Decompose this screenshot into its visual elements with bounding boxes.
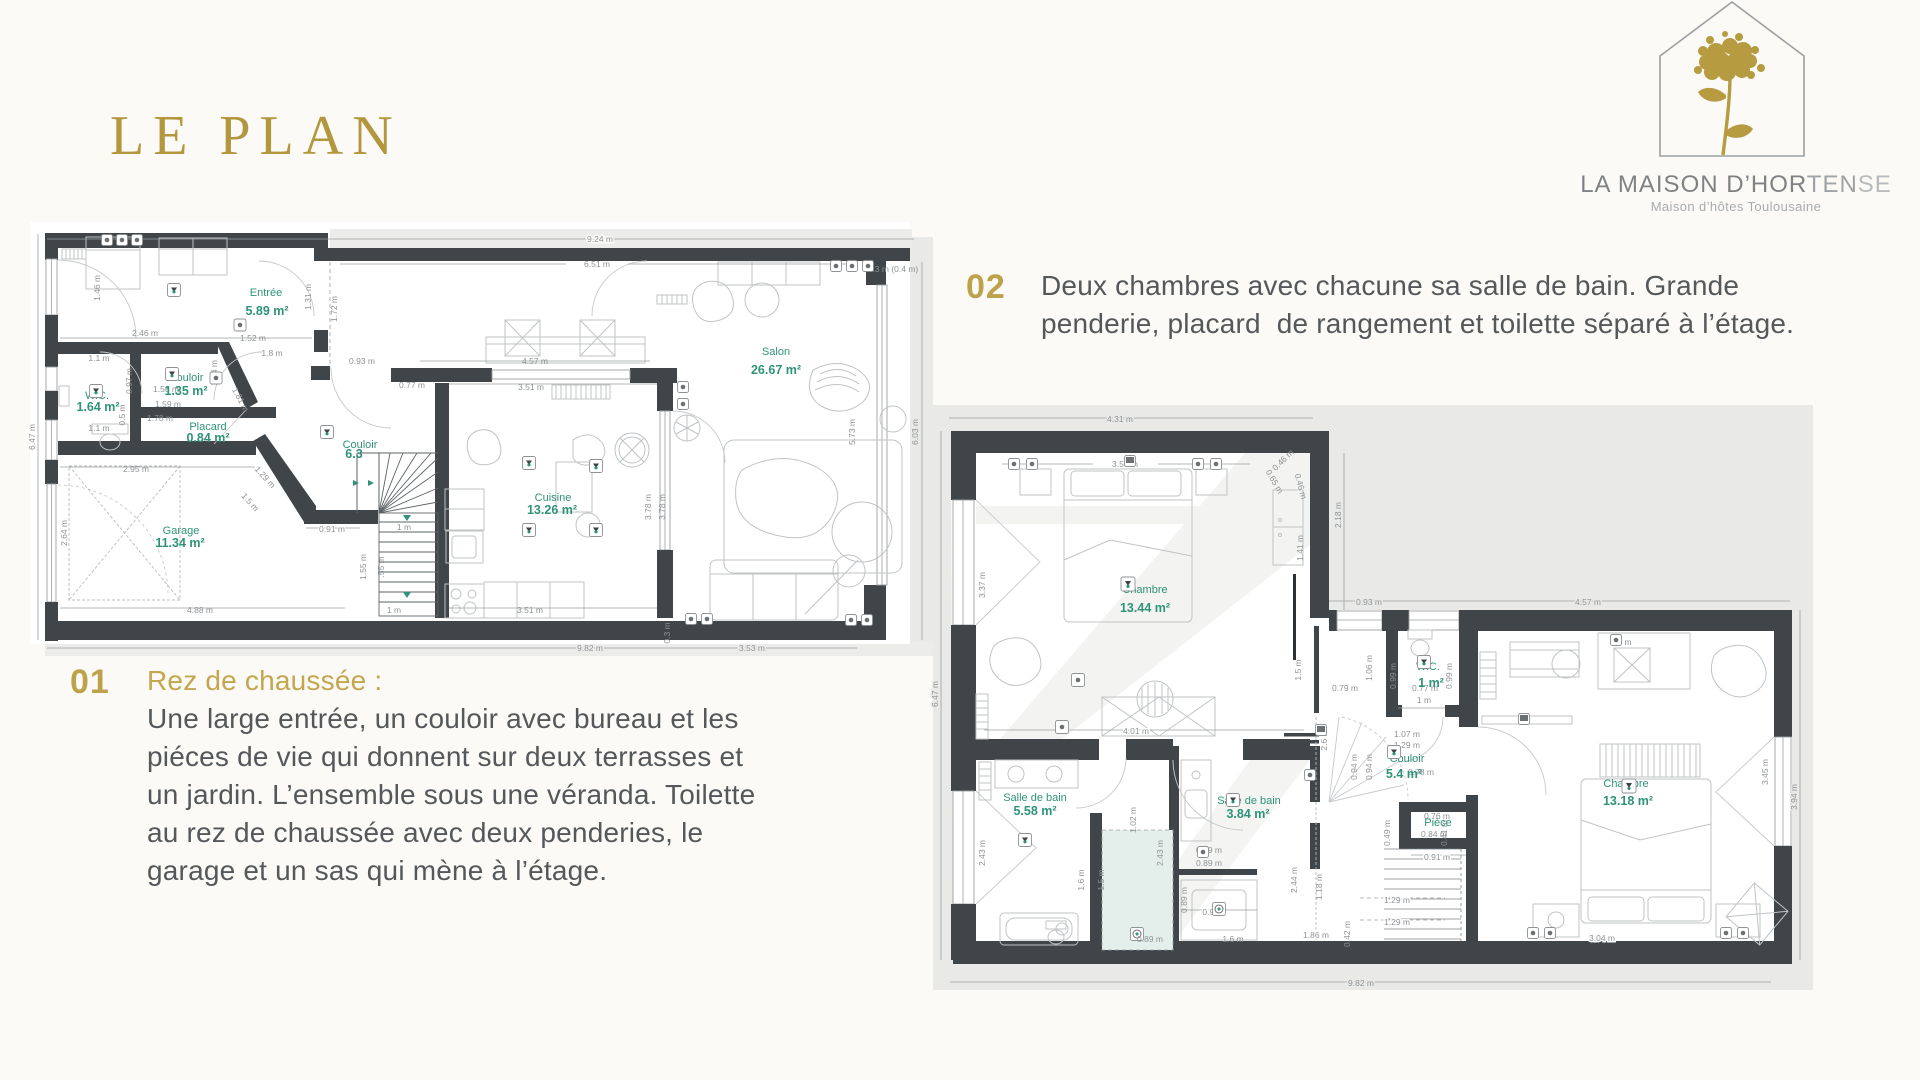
svg-text:1 m: 1 m [387, 605, 401, 615]
svg-text:3.84 m²: 3.84 m² [1226, 807, 1269, 821]
svg-text:13.44 m²: 13.44 m² [1120, 601, 1170, 615]
svg-text:1.59 m: 1.59 m [155, 399, 181, 409]
svg-text:4.31 m: 4.31 m [1107, 414, 1133, 424]
svg-text:3.45 m: 3.45 m [1760, 759, 1770, 785]
svg-text:0.94 m: 0.94 m [1349, 754, 1359, 780]
svg-text:13.26 m²: 13.26 m² [527, 503, 577, 517]
svg-text:1.5 m: 1.5 m [1096, 869, 1106, 890]
svg-text:3.51 m: 3.51 m [518, 382, 544, 392]
svg-text:0.97 m: 0.97 m [124, 368, 134, 394]
svg-text:1.31 m: 1.31 m [303, 284, 313, 310]
svg-text:2.18 m: 2.18 m [1333, 502, 1343, 528]
svg-text:0.3 m: 0.3 m [662, 622, 672, 643]
svg-text:0.42 m: 0.42 m [1342, 921, 1352, 947]
svg-text:1.06 m: 1.06 m [1364, 655, 1374, 681]
svg-text:11.34 m²: 11.34 m² [155, 536, 204, 550]
svg-text:6.47 m: 6.47 m [27, 424, 37, 450]
svg-text:1.72 m: 1.72 m [329, 296, 339, 322]
svg-text:0.93 m: 0.93 m [349, 356, 375, 366]
svg-text:3.53 m: 3.53 m [739, 643, 765, 653]
svg-text:1.29 m: 1.29 m [1384, 895, 1410, 905]
svg-text:9.24 m: 9.24 m [587, 234, 613, 244]
svg-text:0.99 m: 0.99 m [1444, 663, 1454, 689]
svg-text:1.35 m²: 1.35 m² [164, 384, 207, 398]
svg-text:6.51 m: 6.51 m [584, 259, 610, 269]
svg-text:Salle de bain: Salle de bain [1003, 792, 1067, 804]
svg-text:4.57 m: 4.57 m [1575, 597, 1601, 607]
svg-text:Pièce: Pièce [1424, 817, 1452, 829]
svg-text:1 m: 1 m [1417, 695, 1431, 705]
svg-text:0.99 m: 0.99 m [1388, 663, 1398, 689]
svg-text:0.3 m (0.4 m): 0.3 m (0.4 m) [868, 264, 919, 274]
svg-text:3.04 m: 3.04 m [1589, 933, 1615, 943]
svg-text:0.77 m: 0.77 m [399, 380, 425, 390]
svg-text:4.88 m: 4.88 m [187, 605, 213, 615]
svg-text:.55 m: .55 m [376, 556, 386, 577]
svg-text:0.89 m: 0.89 m [1196, 858, 1222, 868]
svg-text:1.5 m: 1.5 m [1293, 659, 1303, 680]
svg-text:0.94 m: 0.94 m [1364, 754, 1374, 780]
svg-text:13.18 m²: 13.18 m² [1603, 794, 1653, 808]
svg-text:2.43 m: 2.43 m [977, 840, 987, 866]
svg-text:2.64 m: 2.64 m [59, 520, 69, 546]
svg-text:1.55 m: 1.55 m [358, 554, 368, 580]
svg-text:Salon: Salon [762, 346, 790, 358]
svg-text:0.89 m: 0.89 m [1179, 887, 1189, 913]
svg-text:6.3: 6.3 [345, 447, 362, 461]
svg-text:0.84 m²: 0.84 m² [186, 431, 229, 445]
svg-text:1 m: 1 m [397, 522, 411, 532]
svg-text:1.02 m: 1.02 m [1128, 807, 1138, 833]
svg-text:1.41 m: 1.41 m [1295, 535, 1305, 561]
svg-text:1.6 m: 1.6 m [1222, 934, 1243, 944]
svg-text:6.47 m: 6.47 m [930, 681, 940, 707]
svg-text:1.18 m: 1.18 m [1314, 874, 1324, 900]
svg-text:1.07 m: 1.07 m [1394, 729, 1420, 739]
svg-text:2.46 m: 2.46 m [132, 328, 158, 338]
svg-text:3.37 m: 3.37 m [977, 572, 987, 598]
svg-text:1.1 m: 1.1 m [88, 353, 109, 363]
svg-text:1.29 m: 1.29 m [1384, 917, 1410, 927]
svg-text:5.4 m²: 5.4 m² [1386, 767, 1422, 781]
svg-text:26.67 m²: 26.67 m² [751, 363, 801, 377]
svg-text:6.03 m: 6.03 m [910, 419, 920, 445]
svg-text:1.78 m: 1.78 m [147, 413, 173, 423]
svg-text:4.57 m: 4.57 m [522, 356, 548, 366]
svg-text:1.64 m²: 1.64 m² [76, 400, 119, 414]
svg-text:3.51 m: 3.51 m [517, 605, 543, 615]
svg-text:1 m²: 1 m² [1418, 676, 1444, 690]
svg-text:1.8 m: 1.8 m [261, 348, 282, 358]
svg-text:5.58 m²: 5.58 m² [1013, 804, 1056, 818]
svg-text:9.82 m: 9.82 m [1348, 978, 1374, 988]
svg-text:3.94 m: 3.94 m [1789, 784, 1799, 810]
svg-text:3.78 m: 3.78 m [657, 494, 667, 520]
svg-text:1.1 m: 1.1 m [88, 423, 109, 433]
svg-text:0.93 m: 0.93 m [1356, 597, 1382, 607]
svg-text:0.79 m: 0.79 m [1332, 683, 1358, 693]
svg-text:0.89 m: 0.89 m [1137, 934, 1163, 944]
svg-text:0.49 m: 0.49 m [1382, 820, 1392, 846]
svg-text:0.91 m: 0.91 m [319, 524, 345, 534]
svg-text:Entrée: Entrée [250, 287, 282, 299]
svg-text:2.43 m: 2.43 m [1155, 840, 1165, 866]
svg-text:3.78 m: 3.78 m [643, 494, 653, 520]
svg-text:1.86 m: 1.86 m [1303, 930, 1329, 940]
svg-text:0.91 m: 0.91 m [1424, 852, 1450, 862]
svg-text:1.46 m: 1.46 m [92, 275, 102, 301]
svg-text:1.52 m: 1.52 m [240, 333, 266, 343]
svg-text:5.89 m²: 5.89 m² [245, 304, 288, 318]
svg-text:5.73 m: 5.73 m [847, 419, 857, 445]
svg-text:2.44 m: 2.44 m [1289, 867, 1299, 893]
svg-text:4.01 m: 4.01 m [1123, 726, 1149, 736]
svg-text:1.6 m: 1.6 m [1076, 869, 1086, 890]
svg-text:9.82 m: 9.82 m [577, 643, 603, 653]
svg-text:2.95 m: 2.95 m [123, 464, 149, 474]
